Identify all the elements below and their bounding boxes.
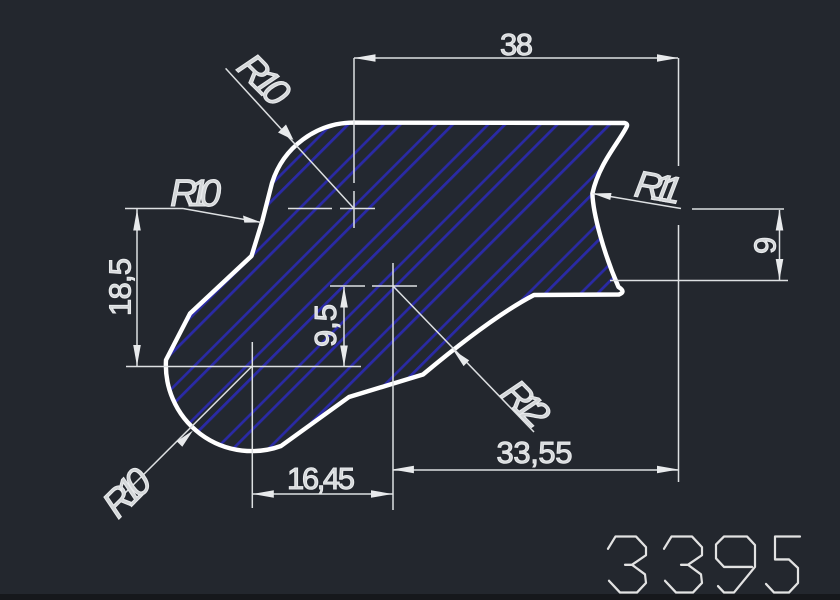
svg-text:R11: R11 xyxy=(631,164,685,214)
svg-text:9: 9 xyxy=(748,237,783,254)
svg-text:38: 38 xyxy=(500,27,533,62)
svg-text:R10: R10 xyxy=(170,173,221,215)
svg-text:33,55: 33,55 xyxy=(497,435,573,470)
svg-text:16,45: 16,45 xyxy=(287,461,355,496)
svg-text:9,5: 9,5 xyxy=(308,304,343,347)
svg-text:18,5: 18,5 xyxy=(103,258,138,316)
